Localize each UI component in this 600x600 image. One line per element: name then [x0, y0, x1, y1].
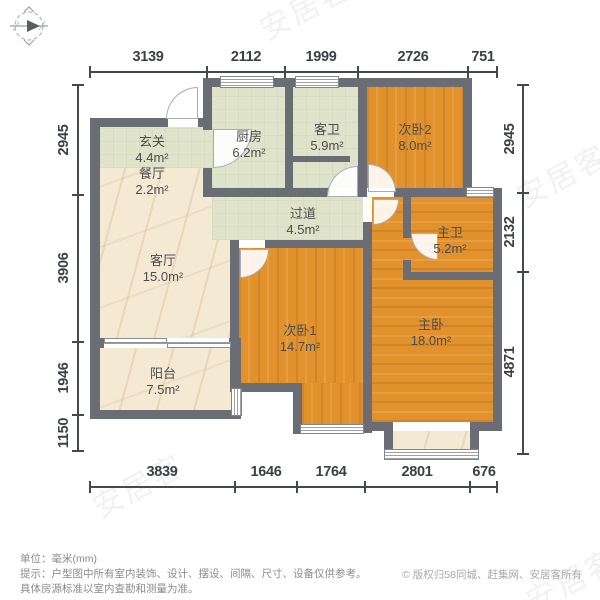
room-name: 客卫: [310, 122, 343, 138]
room-name: 过道: [286, 206, 319, 222]
room-label-bedroom1: 次卧1 14.7m²: [280, 323, 320, 354]
room-label-corridor: 过道 4.5m²: [286, 206, 319, 237]
room-label-master-bedroom: 主卧 18.0m²: [411, 317, 451, 348]
wall: [403, 197, 411, 238]
dim-label: 2112: [231, 49, 261, 65]
wall: [363, 222, 372, 433]
entrance-door: [166, 87, 198, 119]
dim-label: 1150: [56, 418, 72, 448]
room-label-dining: 餐厅 2.2m²: [135, 166, 168, 197]
master-bath-window: [466, 187, 494, 198]
room-label-kitchen: 厨房 6.2m²: [232, 129, 265, 160]
bedroom1-floor: [302, 383, 363, 425]
room-name: 阳台: [146, 366, 179, 382]
room-area: 18.0m²: [411, 333, 451, 349]
dim-label: 1999: [305, 49, 336, 65]
dim-label: 2945: [502, 123, 518, 154]
disclaimer-line2: 具体房源标准以室内查勘和测量为准。: [20, 582, 199, 597]
wall: [265, 240, 363, 248]
bay-window-floor: [393, 431, 470, 450]
dim-line-bottom: [90, 486, 498, 488]
room-name: 客厅: [143, 253, 183, 269]
guest-bath-window: [295, 76, 339, 88]
room-label-bedroom2: 次卧2 8.0m²: [398, 122, 431, 153]
room-label-master-bath: 主卫 5.2m²: [433, 225, 466, 256]
balcony-side-window: [231, 388, 242, 416]
dim-label: 3906: [56, 252, 72, 283]
room-name: 主卧: [411, 317, 451, 333]
room-area: 5.9m²: [310, 138, 343, 154]
dim-tick: [72, 194, 84, 196]
dim-tick: [72, 84, 84, 86]
watermark-text: 安居客: [83, 441, 191, 526]
room-area: 4.4m²: [135, 150, 168, 166]
wall: [203, 188, 330, 197]
wall: [90, 410, 241, 419]
floorplan-canvas: 安居客 安居客 安居客 安居客 安居客: [0, 0, 600, 600]
copyright-text: © 版权归58同城、赶集网、安居客所有: [402, 567, 582, 582]
room-label-entry: 玄关 4.4m²: [135, 134, 168, 165]
wall: [90, 338, 104, 348]
room-name: 厨房: [232, 129, 265, 145]
dim-label: 1646: [250, 464, 281, 480]
dim-label: 3839: [146, 464, 177, 480]
disclaimer-line1: 提示：户型图中所有室内装饰、设计、摆设、间隔、尺寸、设备仅供参考。: [20, 567, 367, 582]
room-area: 14.7m²: [280, 339, 320, 355]
dim-tick: [72, 341, 84, 343]
wall: [403, 272, 502, 280]
balcony-sliding-door-panel: [104, 338, 167, 343]
wall: [292, 156, 350, 162]
dim-line-right: [522, 85, 524, 455]
room-name: 次卧2: [398, 122, 431, 138]
dim-tick: [206, 66, 208, 78]
wall: [90, 118, 168, 127]
watermark-text: 安居客: [250, 0, 358, 49]
wall: [394, 188, 468, 197]
dim-tick: [296, 481, 298, 493]
room-area: 5.2m²: [433, 241, 466, 257]
dim-tick: [364, 481, 366, 493]
dim-line-top: [90, 71, 498, 73]
wall: [463, 78, 472, 197]
room-label-guest-bath: 客卫 5.9m²: [310, 122, 343, 153]
dim-label: 2726: [397, 49, 428, 65]
room-area: 4.5m²: [286, 222, 319, 238]
dim-label: 1946: [56, 362, 72, 393]
dim-tick: [517, 192, 529, 194]
dim-label: 4871: [502, 346, 518, 377]
dim-tick: [517, 84, 529, 86]
unit-note: 单位：毫米(mm): [20, 552, 97, 567]
dim-tick: [469, 481, 471, 493]
dim-tick: [467, 66, 469, 78]
kitchen-window: [220, 76, 274, 88]
compass-icon: [8, 5, 50, 47]
dim-tick: [72, 414, 84, 416]
dim-label: 676: [472, 464, 495, 480]
dim-tick: [89, 481, 91, 493]
dim-tick: [284, 66, 286, 78]
dim-line-left: [77, 85, 79, 452]
dim-tick: [496, 481, 498, 493]
dim-label: 2132: [502, 216, 518, 247]
dim-tick: [72, 450, 84, 452]
wall: [358, 87, 367, 197]
dim-tick: [234, 481, 236, 493]
room-area: 8.0m²: [398, 138, 431, 154]
room-area: 2.2m²: [135, 182, 168, 198]
room-area: 15.0m²: [143, 269, 183, 285]
dim-tick: [517, 271, 529, 273]
dim-tick: [357, 66, 359, 78]
master-bay-window: [384, 449, 479, 460]
room-label-living: 客厅 15.0m²: [143, 253, 183, 284]
wall: [285, 87, 293, 197]
dim-tick: [89, 66, 91, 78]
room-name: 次卧1: [280, 323, 320, 339]
dim-label: 1764: [315, 464, 346, 480]
dim-label: 3139: [132, 49, 163, 65]
dim-label: 751: [471, 49, 494, 65]
dim-tick: [496, 66, 498, 78]
room-name: 玄关: [135, 134, 168, 150]
balcony-sliding-door-panel: [167, 343, 231, 348]
room-name: 主卫: [433, 225, 466, 241]
dim-label: 2945: [56, 124, 72, 155]
room-name: 餐厅: [135, 166, 168, 182]
room-area: 6.2m²: [232, 145, 265, 161]
wall: [90, 118, 100, 419]
wall: [203, 87, 212, 130]
dim-tick: [517, 453, 529, 455]
dim-label: 2801: [401, 464, 432, 480]
room-area: 7.5m²: [146, 382, 179, 398]
room-label-balcony: 阳台 7.5m²: [146, 366, 179, 397]
wall: [403, 260, 411, 272]
wall: [493, 197, 502, 431]
bedroom1-window: [300, 424, 364, 434]
